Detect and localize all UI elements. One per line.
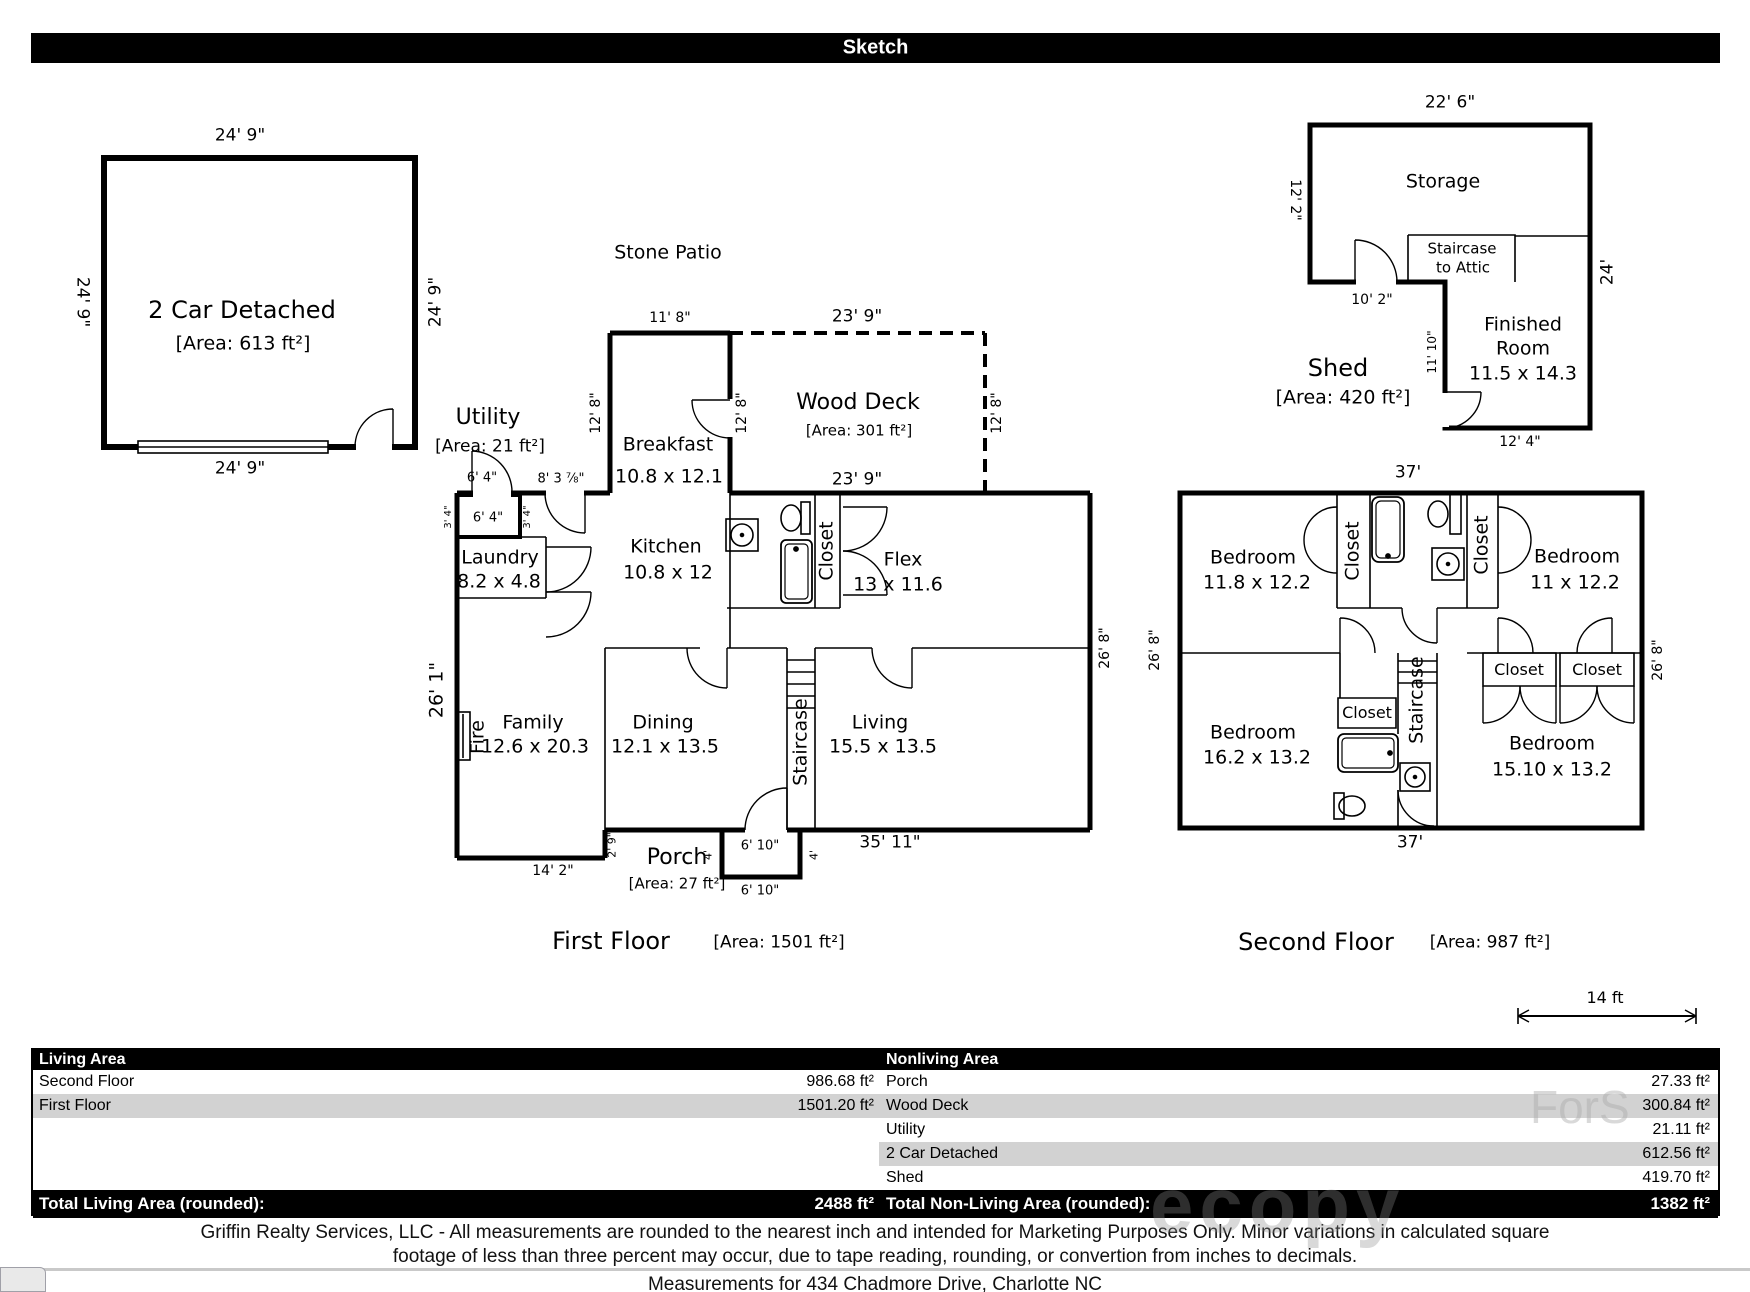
sf-closet2-label: Closet [1473, 515, 1492, 574]
sf-dim-top: 37' [1395, 465, 1421, 482]
utility-door-width: 6' 4" [467, 472, 497, 485]
sf-dim-bottom: 37' [1397, 835, 1423, 852]
living-room-name: Living [852, 714, 909, 733]
flex-dim: 13 x 11.6 [853, 576, 943, 595]
bedroom-bl-dim: 16.2 x 13.2 [1203, 749, 1311, 768]
laundry-dim: 8.2 x 4.8 [457, 573, 541, 592]
sf-dim-left: 26' 8" [1148, 629, 1162, 670]
table-header-row: Living Area Nonliving Area [33, 1050, 1718, 1070]
flex-room-name: Flex [884, 551, 923, 570]
utility-area: [Area: 21 ft²] [435, 439, 545, 456]
shed-dim-notch: 10' 2" [1351, 293, 1392, 307]
ff-closet-label: Closet [818, 521, 837, 580]
bedroom-tl-name: Bedroom [1210, 549, 1296, 568]
laundry-room-name: Laundry [461, 549, 538, 568]
sf-closet1-label: Closet [1344, 521, 1363, 580]
nonliving-row-label: 2 Car Detached [886, 1145, 998, 1163]
breakfast-dim: 10.8 x 12.1 [615, 468, 723, 487]
sink-icon [1400, 763, 1430, 791]
bedroom-bl-name: Bedroom [1210, 724, 1296, 743]
address-note: Measurements for 434 Chadmore Drive, Cha… [0, 1274, 1750, 1292]
total-living-label: Total Living Area (rounded): [39, 1194, 265, 1214]
ff-dim-bottom-left: 14' 2" [532, 864, 573, 878]
kitchen-dim: 10.8 x 12 [623, 564, 713, 583]
nonliving-row-value: 27.33 ft² [1651, 1073, 1710, 1091]
nonliving-row-label: Utility [886, 1121, 925, 1139]
stone-patio-label: Stone Patio [614, 244, 722, 263]
shed-name: Shed [1308, 356, 1368, 380]
nonliving-row-label: Wood Deck [886, 1097, 968, 1115]
disclaimer-line-1: Griffin Realty Services, LLC - All measu… [0, 1222, 1750, 1244]
dining-dim: 12.1 x 13.5 [611, 738, 719, 757]
living-row-value: 986.68 ft² [806, 1073, 874, 1091]
shed-dim-left: 12' 2" [1288, 179, 1302, 220]
bedroom-br-name: Bedroom [1509, 735, 1595, 754]
ff-dim-right: 26' 8" [1098, 627, 1112, 668]
living-row-value: 1501.20 ft² [798, 1097, 875, 1115]
garage-door [138, 441, 328, 453]
kitchen-room-name: Kitchen [630, 538, 701, 557]
bedroom-tl-dim: 11.8 x 12.2 [1203, 574, 1311, 593]
page-title: Sketch [843, 37, 909, 60]
breakfast-dim-top: 11' 8" [649, 311, 690, 325]
garage-dim-top: 24' 9" [215, 128, 265, 145]
bedroom-tr-dim: 11 x 12.2 [1530, 574, 1620, 593]
living-dim: 15.5 x 13.5 [829, 738, 937, 757]
garage-room-name: 2 Car Detached [148, 298, 336, 322]
porch-offset-dim: 2' 9" [607, 832, 618, 858]
garage-dim-right: 24' 9" [428, 277, 445, 327]
nonliving-row-label: Shed [886, 1169, 923, 1187]
porch-side-right: 4' [809, 850, 820, 860]
toilet-icon [1428, 494, 1461, 534]
garage-dim-left: 24' 9" [74, 277, 91, 327]
living-area-header: Living Area [39, 1051, 126, 1069]
bathtub-icon [781, 540, 812, 603]
living-row-label: First Floor [39, 1097, 111, 1115]
toilet-icon [1334, 793, 1365, 819]
bedroom-br-dim: 15.10 x 13.2 [1492, 761, 1612, 780]
utility-side-right: 3' 4" [523, 505, 533, 528]
nonliving-area-header: Nonliving Area [886, 1051, 998, 1069]
total-nonliving-label: Total Non-Living Area (rounded): [886, 1194, 1150, 1214]
breakfast-dim-left: 12' 8" [589, 392, 603, 433]
sf-dim-right: 26' 8" [1651, 639, 1665, 680]
sf-closet4-label: Closet [1494, 662, 1544, 678]
area-summary-table: Living Area Nonliving Area Second Floor … [31, 1048, 1720, 1216]
table-row: 2 Car Detached 612.56 ft² [33, 1142, 1718, 1166]
living-row-label: Second Floor [39, 1073, 134, 1091]
shed-dim-right: 24' [1600, 259, 1617, 285]
total-living-value: 2488 ft² [814, 1194, 874, 1214]
sketch-page: Sketch 24' 9" 24' 9" 24' 9" 24' 9" 2 Car… [0, 0, 1750, 1292]
finished-room-line2: Room [1496, 340, 1550, 359]
garage-area: [Area: 613 ft²] [176, 335, 311, 354]
deck-room-name: Wood Deck [796, 392, 920, 414]
table-totals-row: Total Living Area (rounded): 2488 ft² To… [33, 1190, 1718, 1218]
porch-width-top: 6' 10" [741, 840, 780, 853]
scale-bar-graphic [1518, 1008, 1696, 1024]
scale-bar-label: 14 ft [1586, 990, 1623, 1006]
sf-closet5-label: Closet [1572, 662, 1622, 678]
sketch-title-bar: Sketch [31, 33, 1720, 63]
breakfast-dim-right: 12' 8" [735, 392, 749, 433]
attic-staircase-line1: Staircase [1427, 242, 1496, 257]
porch-room-name: Porch [647, 847, 708, 869]
table-row: First Floor 1501.20 ft² Wood Deck 300.84… [33, 1094, 1718, 1118]
bedroom-tr-name: Bedroom [1534, 548, 1620, 567]
sf-staircase-label: Staircase [1408, 656, 1427, 744]
first-floor-area: [Area: 1501 ft²] [713, 935, 844, 952]
porch-area: [Area: 27 ft²] [629, 877, 726, 892]
nonliving-row-value: 419.70 ft² [1642, 1169, 1710, 1187]
shed-dim-inner: 11' 10" [1426, 330, 1438, 373]
shed-dim-bottom: 12' 4" [1499, 435, 1540, 449]
scroll-corner-chip [0, 1267, 46, 1292]
nonliving-row-value: 21.11 ft² [1652, 1121, 1710, 1139]
porch-side-left: 4' [703, 850, 714, 860]
total-nonliving-value: 1382 ft² [1650, 1194, 1710, 1214]
ff-staircase-label: Staircase [792, 698, 811, 786]
utility-inner-width: 6' 4" [473, 512, 503, 525]
nonliving-row-value: 300.84 ft² [1642, 1097, 1710, 1115]
storage-room-name: Storage [1406, 173, 1480, 192]
table-row: Utility 21.11 ft² [33, 1118, 1718, 1142]
second-floor-area: [Area: 987 ft²] [1430, 935, 1551, 952]
deck-dim-bottom: 23' 9" [832, 472, 882, 489]
deck-dim-right: 12' 8" [990, 392, 1004, 433]
sink-icon [1432, 548, 1464, 580]
first-floor-title: First Floor [552, 929, 670, 953]
shed-dim-top: 22' 6" [1425, 95, 1475, 112]
finished-room-dim: 11.5 x 14.3 [1469, 365, 1577, 384]
ff-dim-left: 26' 1" [428, 662, 447, 718]
row-stripe [879, 1142, 1718, 1166]
family-dim: 12.6 x 20.3 [481, 738, 589, 757]
table-row: Shed 419.70 ft² [33, 1166, 1718, 1190]
utility-wall-width: 8' 3 ⅞" [538, 473, 585, 486]
toilet-icon [781, 502, 810, 534]
nonliving-row-value: 612.56 ft² [1642, 1145, 1710, 1163]
finished-room-line1: Finished [1484, 316, 1562, 335]
bathtub-icon [1338, 734, 1398, 772]
table-row: Second Floor 986.68 ft² Porch 27.33 ft² [33, 1070, 1718, 1094]
utility-room-name: Utility [456, 407, 521, 429]
dining-room-name: Dining [632, 714, 693, 733]
family-room-name: Family [502, 714, 563, 733]
ff-dim-bottom-right: 35' 11" [859, 835, 920, 852]
garage-dim-bottom: 24' 9" [215, 461, 265, 478]
second-floor-title: Second Floor [1238, 930, 1394, 954]
disclaimer-line-2: footage of less than three percent may o… [0, 1246, 1750, 1268]
bathtub-icon [1372, 497, 1404, 562]
deck-dim-top: 23' 9" [832, 309, 882, 326]
nonliving-row-label: Porch [886, 1073, 928, 1091]
footer-divider [0, 1268, 1750, 1271]
porch-width-bottom: 6' 10" [741, 885, 780, 898]
breakfast-room-name: Breakfast [623, 436, 713, 455]
sf-closet3-label: Closet [1342, 705, 1392, 721]
shed-area: [Area: 420 ft²] [1276, 389, 1411, 408]
deck-area: [Area: 301 ft²] [806, 424, 912, 439]
utility-side-left: 3' 4" [444, 505, 454, 528]
attic-staircase-line2: to Attic [1436, 261, 1490, 276]
